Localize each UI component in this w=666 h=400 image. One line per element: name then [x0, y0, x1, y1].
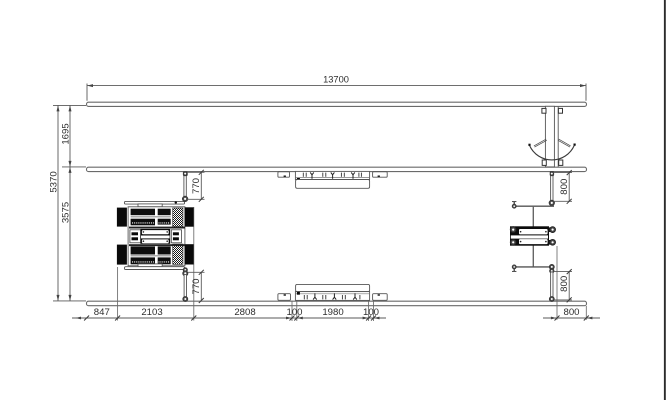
svg-text:800: 800 [563, 307, 579, 318]
svg-text:100: 100 [363, 307, 379, 318]
svg-text:5370: 5370 [48, 171, 59, 192]
svg-text:770: 770 [191, 278, 202, 294]
svg-text:13700: 13700 [323, 75, 349, 85]
svg-text:1695: 1695 [61, 123, 72, 144]
svg-text:2808: 2808 [234, 307, 255, 318]
svg-text:2103: 2103 [141, 307, 162, 318]
svg-text:800: 800 [559, 179, 570, 195]
svg-text:1980: 1980 [322, 307, 343, 318]
svg-text:100: 100 [286, 307, 302, 318]
svg-text:800: 800 [559, 276, 570, 292]
svg-text:770: 770 [191, 178, 202, 194]
svg-text:3575: 3575 [61, 202, 72, 223]
svg-text:847: 847 [94, 307, 110, 318]
